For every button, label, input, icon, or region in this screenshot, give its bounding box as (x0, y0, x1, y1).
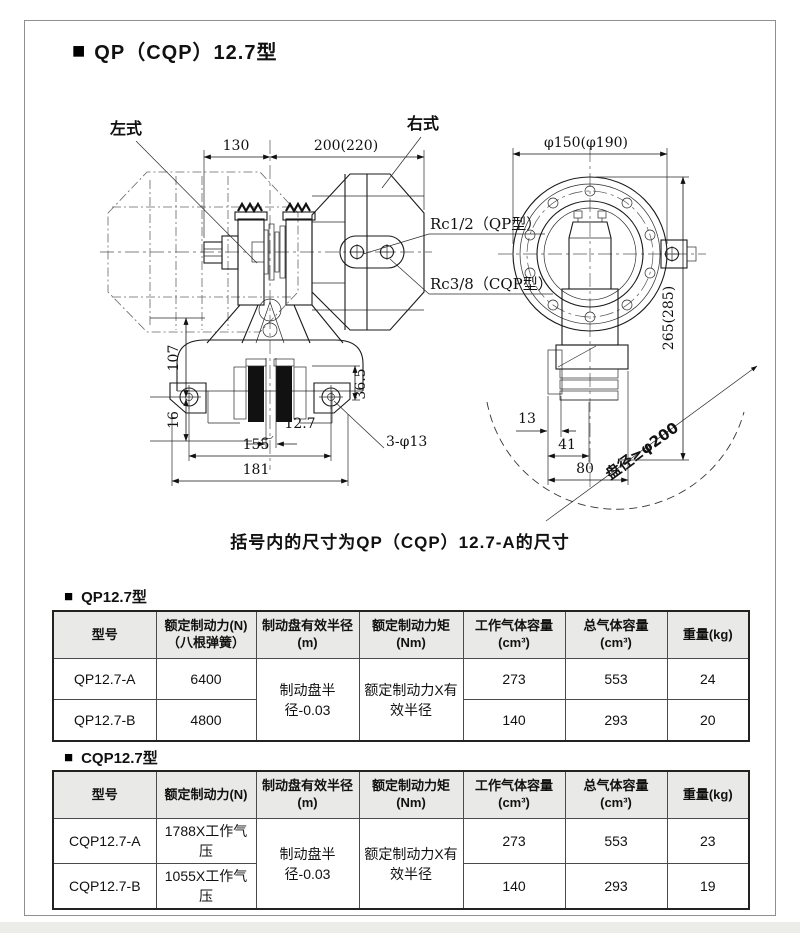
cell-working-volume: 140 (463, 700, 565, 742)
dim-107-label: 107 (166, 345, 182, 372)
section-heading-cqp: ■ CQP12.7型 (64, 747, 158, 768)
cell-total-volume: 293 (565, 864, 667, 910)
section-marker-icon: ■ (64, 750, 73, 765)
cell-radius-merged: 制动盘半径-0.03 (256, 659, 359, 742)
col-weight: 重量(kg) (667, 611, 749, 659)
col-force: 额定制动力(N) (156, 771, 256, 819)
col-force: 额定制动力(N)（八根弹簧） (156, 611, 256, 659)
table-header-row: 型号 额定制动力(N)（八根弹簧） 制动盘有效半径(m) 额定制动力矩(Nm) … (53, 611, 749, 659)
cell-model: CQP12.7-B (53, 864, 156, 910)
cell-total-volume: 293 (565, 700, 667, 742)
col-model: 型号 (53, 771, 156, 819)
col-model: 型号 (53, 611, 156, 659)
col-torque: 额定制动力矩(Nm) (359, 611, 463, 659)
left-view-label: 左式 (109, 119, 142, 138)
col-radius: 制动盘有效半径(m) (256, 771, 359, 819)
brake-pad (276, 366, 292, 422)
col-total-volume: 总气体容量(cm³) (565, 771, 667, 819)
cell-torque-merged: 额定制动力X有效半径 (359, 659, 463, 742)
spec-table-qp: 型号 额定制动力(N)（八根弹簧） 制动盘有效半径(m) 额定制动力矩(Nm) … (52, 610, 750, 742)
dim-16-label: 16 (166, 411, 182, 429)
cell-force: 6400 (156, 659, 256, 700)
cell-radius-merged: 制动盘半径-0.03 (256, 819, 359, 910)
col-working-volume: 工作气体容量(cm³) (463, 771, 565, 819)
dim-36-5-label: 36.5 (353, 368, 369, 399)
col-torque: 额定制动力矩(Nm) (359, 771, 463, 819)
drawing-caption: 括号内的尺寸为QP（CQP）12.7-A的尺寸 (0, 528, 800, 553)
cell-model: CQP12.7-A (53, 819, 156, 864)
section-marker-icon: ■ (64, 589, 73, 604)
dim-height-label: 265(285) (661, 286, 677, 350)
dim-155-label: 155 (243, 437, 270, 453)
section-heading-qp: ■ QP12.7型 (64, 586, 147, 607)
col-total-volume: 总气体容量(cm³) (565, 611, 667, 659)
col-working-volume: 工作气体容量(cm³) (463, 611, 565, 659)
right-view-label: 右式 (407, 114, 439, 133)
right-view: 盘径≥φ200 φ150(φ190) 265(285) 13 41 80 (487, 135, 757, 521)
cell-model: QP12.7-A (53, 659, 156, 700)
cell-weight: 24 (667, 659, 749, 700)
disc-note-label: 盘径≥φ200 (602, 419, 682, 484)
cell-force: 1055X工作气压 (156, 864, 256, 910)
dim-41-label: 41 (558, 437, 576, 453)
dim-shaft-label: 130 (223, 138, 250, 154)
technical-drawing: 130 200(220) 左式 右式 Rc1/2（QP型） Rc3/8（CQP型… (0, 0, 800, 540)
cell-weight: 19 (667, 864, 749, 910)
catalog-page: ■ QP（CQP）12.7型 (0, 0, 800, 933)
left-view: 130 200(220) 左式 右式 Rc1/2（QP型） Rc3/8（CQP型… (100, 114, 553, 486)
dim-12-7-label: 12.7 (284, 416, 315, 432)
dim-181-label: 181 (243, 462, 270, 478)
dim-body-label: 200(220) (314, 138, 378, 154)
table-row: QP12.7-A 6400 制动盘半径-0.03 额定制动力X有效半径 273 … (53, 659, 749, 700)
dim-flange-label: φ150(φ190) (544, 135, 628, 151)
cell-force: 4800 (156, 700, 256, 742)
cell-force: 1788X工作气压 (156, 819, 256, 864)
cell-weight: 20 (667, 700, 749, 742)
cell-total-volume: 553 (565, 819, 667, 864)
col-radius: 制动盘有效半径(m) (256, 611, 359, 659)
spec-table-cqp: 型号 额定制动力(N) 制动盘有效半径(m) 额定制动力矩(Nm) 工作气体容量… (52, 770, 750, 910)
spring-symbol (286, 204, 310, 211)
section-title-cqp: CQP12.7型 (81, 747, 158, 768)
brake-pad (248, 366, 264, 422)
spring-symbol (238, 204, 262, 211)
table-row: CQP12.7-A 1788X工作气压 制动盘半径-0.03 额定制动力X有效半… (53, 819, 749, 864)
cell-working-volume: 273 (463, 819, 565, 864)
cell-model: QP12.7-B (53, 700, 156, 742)
dim-13-label: 13 (518, 411, 536, 427)
cell-working-volume: 273 (463, 659, 565, 700)
col-weight: 重量(kg) (667, 771, 749, 819)
section-title-qp: QP12.7型 (81, 586, 147, 607)
table-header-row: 型号 额定制动力(N) 制动盘有效半径(m) 额定制动力矩(Nm) 工作气体容量… (53, 771, 749, 819)
cell-torque-merged: 额定制动力X有效半径 (359, 819, 463, 910)
cell-weight: 23 (667, 819, 749, 864)
page-bottom-edge (0, 922, 800, 933)
port-qp-label: Rc1/2（QP型） (430, 215, 541, 233)
dim-80-label: 80 (576, 461, 594, 477)
port-cqp-label: Rc3/8（CQP型） (430, 275, 553, 293)
dim-holes-label: 3-φ13 (386, 434, 427, 450)
cell-total-volume: 553 (565, 659, 667, 700)
cell-working-volume: 140 (463, 864, 565, 910)
